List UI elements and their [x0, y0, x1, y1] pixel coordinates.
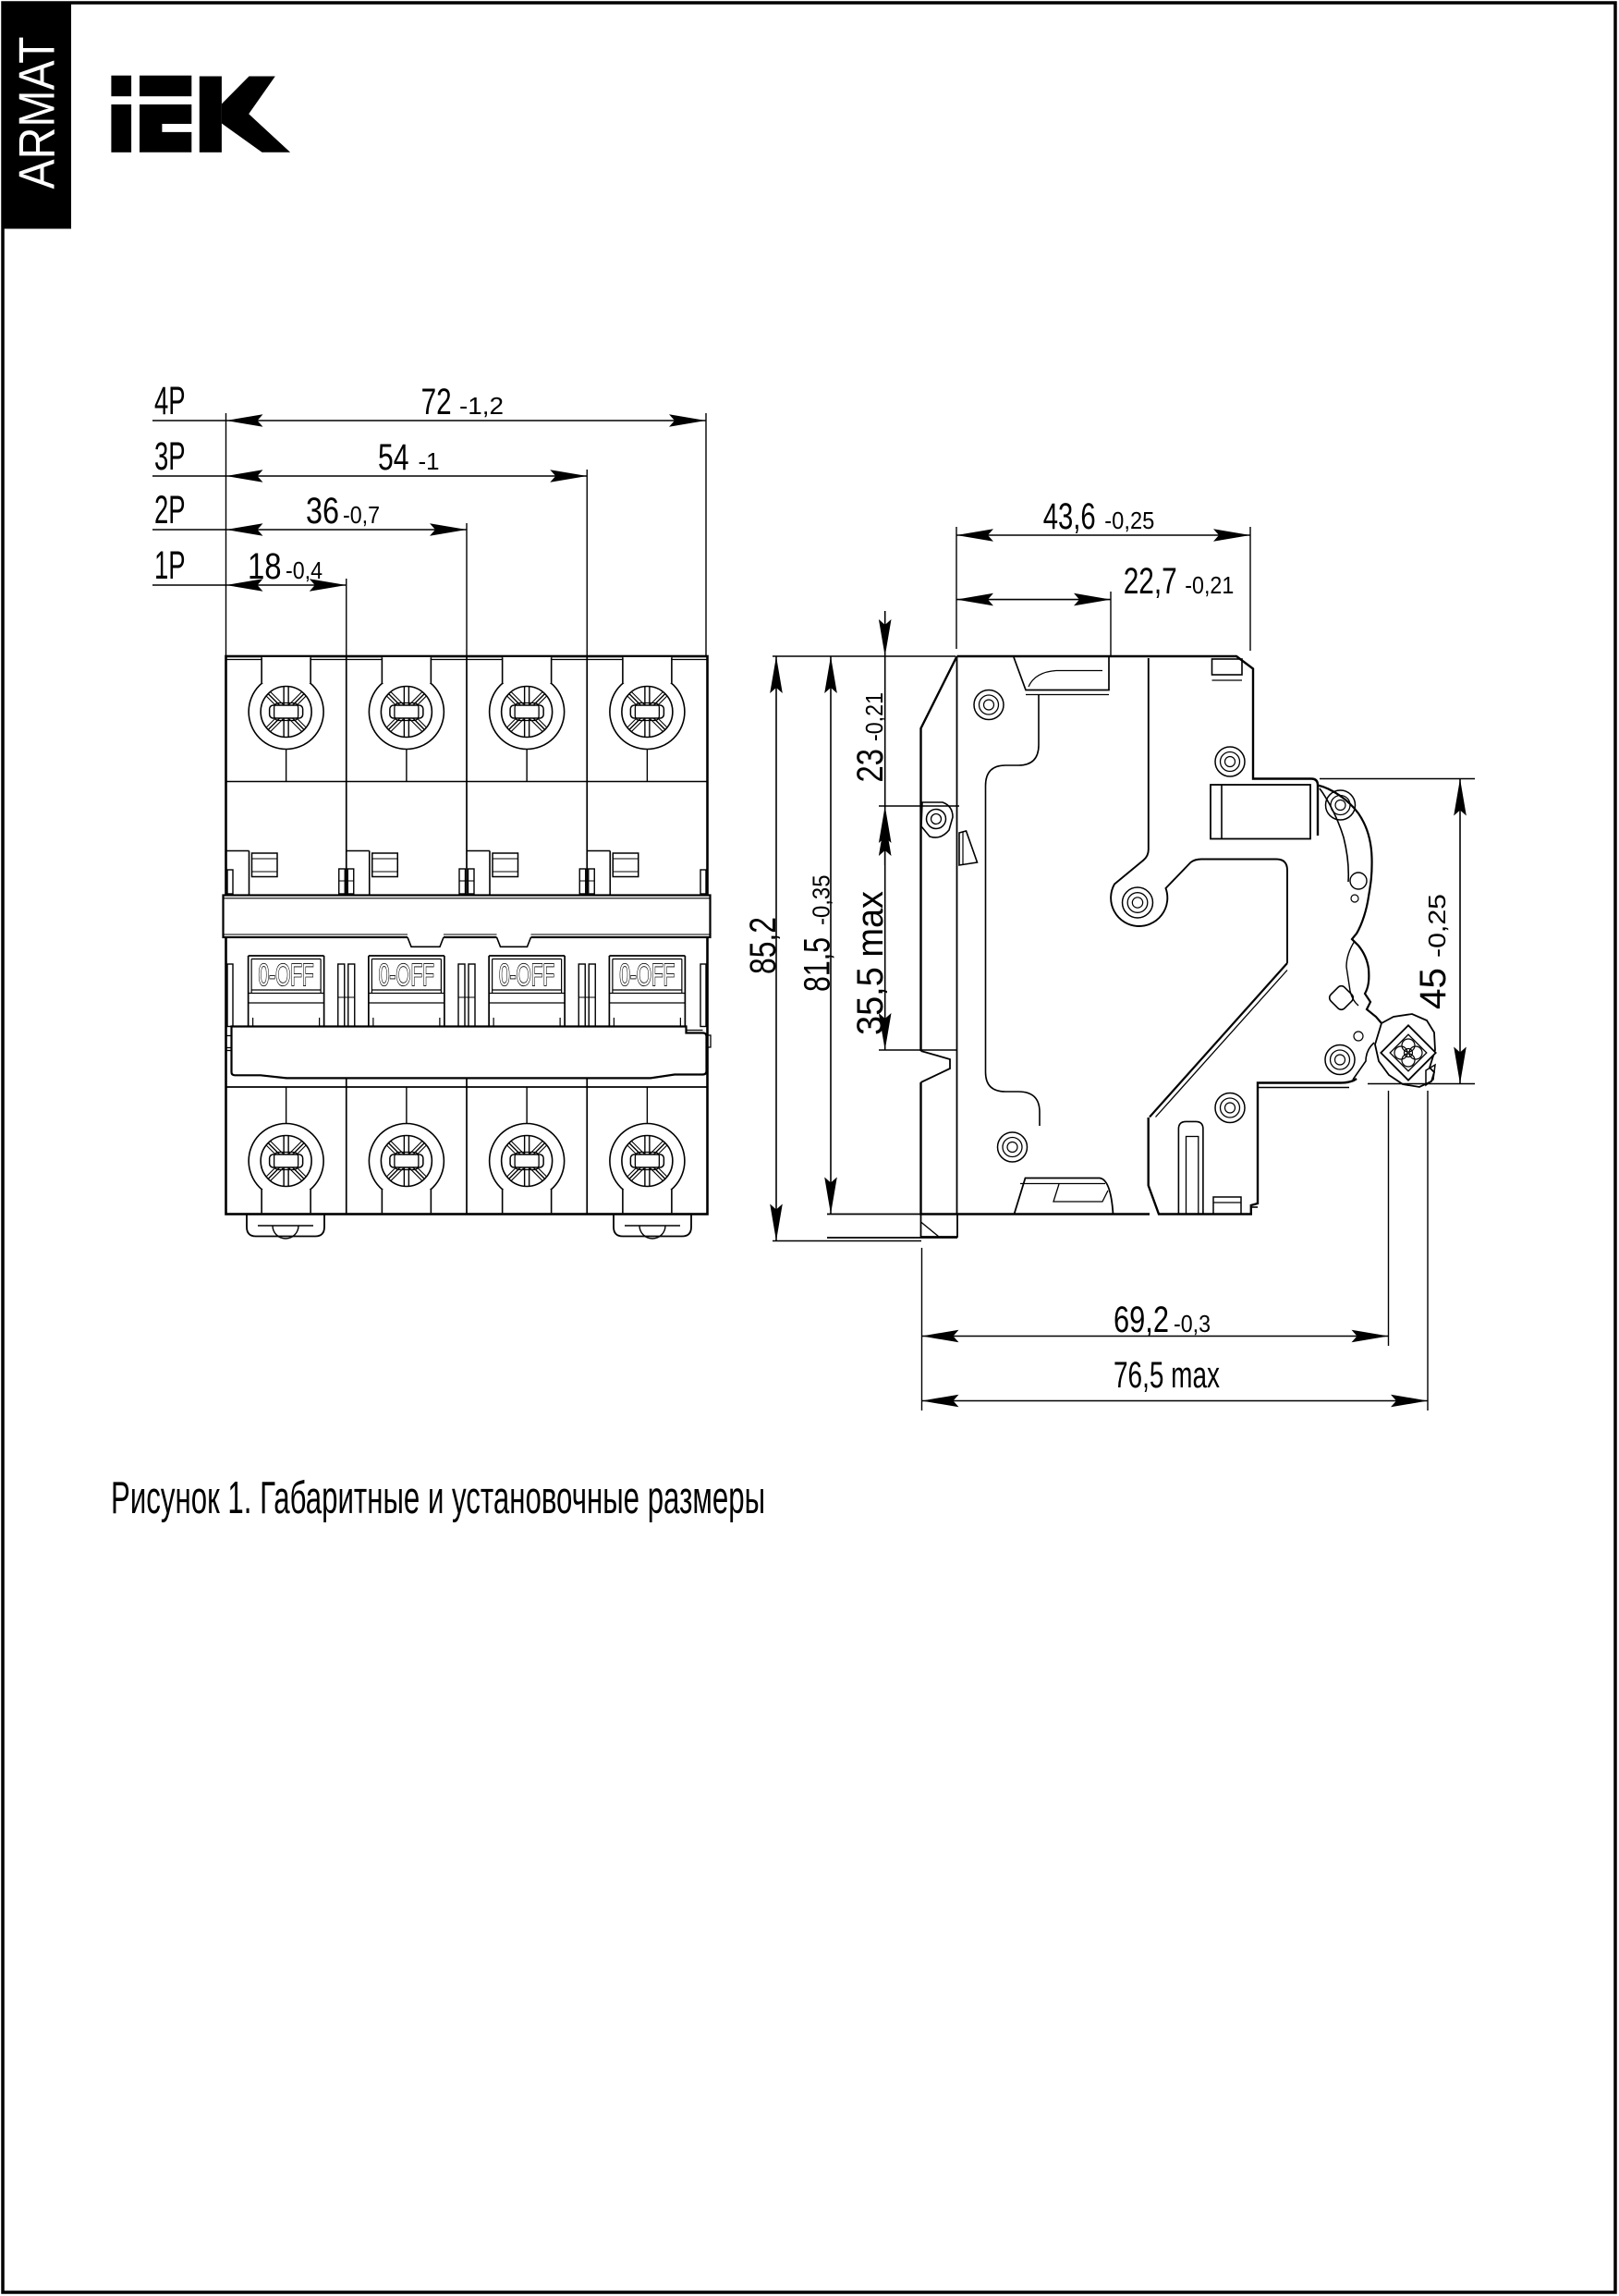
svg-text:3P: 3P — [154, 434, 186, 479]
svg-text:69,2: 69,2 — [1114, 1300, 1169, 1340]
svg-text:-1,2: -1,2 — [459, 392, 504, 420]
svg-text:-0,7: -0,7 — [343, 501, 380, 529]
svg-text:-0,25: -0,25 — [1104, 507, 1154, 534]
svg-text:2P: 2P — [154, 488, 186, 532]
svg-text:0-OFF: 0-OFF — [619, 958, 675, 992]
svg-text:22,7: 22,7 — [1124, 561, 1177, 602]
svg-text:ARMAT: ARMAT — [8, 37, 66, 189]
svg-text:18: 18 — [248, 546, 282, 587]
svg-text:72: 72 — [421, 382, 452, 422]
svg-text:35,5 max: 35,5 max — [850, 891, 891, 1035]
svg-text:-0,21: -0,21 — [1185, 571, 1234, 599]
svg-text:81,5: 81,5 — [797, 937, 838, 992]
svg-text:0-OFF: 0-OFF — [499, 958, 554, 992]
svg-text:0-OFF: 0-OFF — [259, 958, 314, 992]
svg-text:36: 36 — [306, 491, 339, 531]
svg-text:54: 54 — [378, 437, 409, 478]
svg-text:-1: -1 — [419, 447, 440, 475]
svg-text:45: 45 — [1413, 968, 1454, 1009]
svg-text:76,5 max: 76,5 max — [1114, 1355, 1220, 1396]
svg-text:85,2: 85,2 — [743, 917, 784, 974]
svg-text:0-OFF: 0-OFF — [379, 958, 434, 992]
svg-text:-0,35: -0,35 — [808, 875, 835, 926]
svg-text:-0,25: -0,25 — [1423, 894, 1451, 958]
svg-text:-0,21: -0,21 — [860, 692, 888, 741]
svg-text:4P: 4P — [154, 379, 186, 423]
svg-text:Рисунок 1. Габаритные и устано: Рисунок 1. Габаритные и установочные раз… — [111, 1472, 765, 1523]
svg-text:-0,3: -0,3 — [1174, 1310, 1211, 1337]
svg-text:43,6: 43,6 — [1043, 496, 1096, 537]
svg-text:-0,4: -0,4 — [286, 556, 323, 584]
svg-text:1P: 1P — [154, 543, 186, 588]
svg-text:23: 23 — [850, 749, 891, 783]
